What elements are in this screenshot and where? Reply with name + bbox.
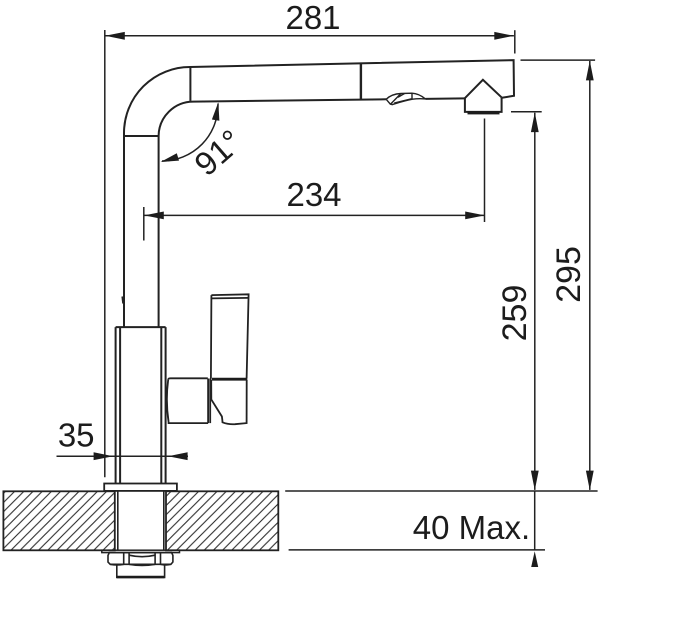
svg-text:35: 35: [58, 417, 95, 454]
svg-text:281: 281: [285, 0, 340, 36]
svg-text:234: 234: [286, 176, 341, 213]
svg-text:295: 295: [550, 246, 588, 303]
svg-text:259: 259: [496, 285, 534, 342]
svg-text:40 Max.: 40 Max.: [413, 509, 530, 546]
svg-text:91°: 91°: [187, 122, 249, 183]
